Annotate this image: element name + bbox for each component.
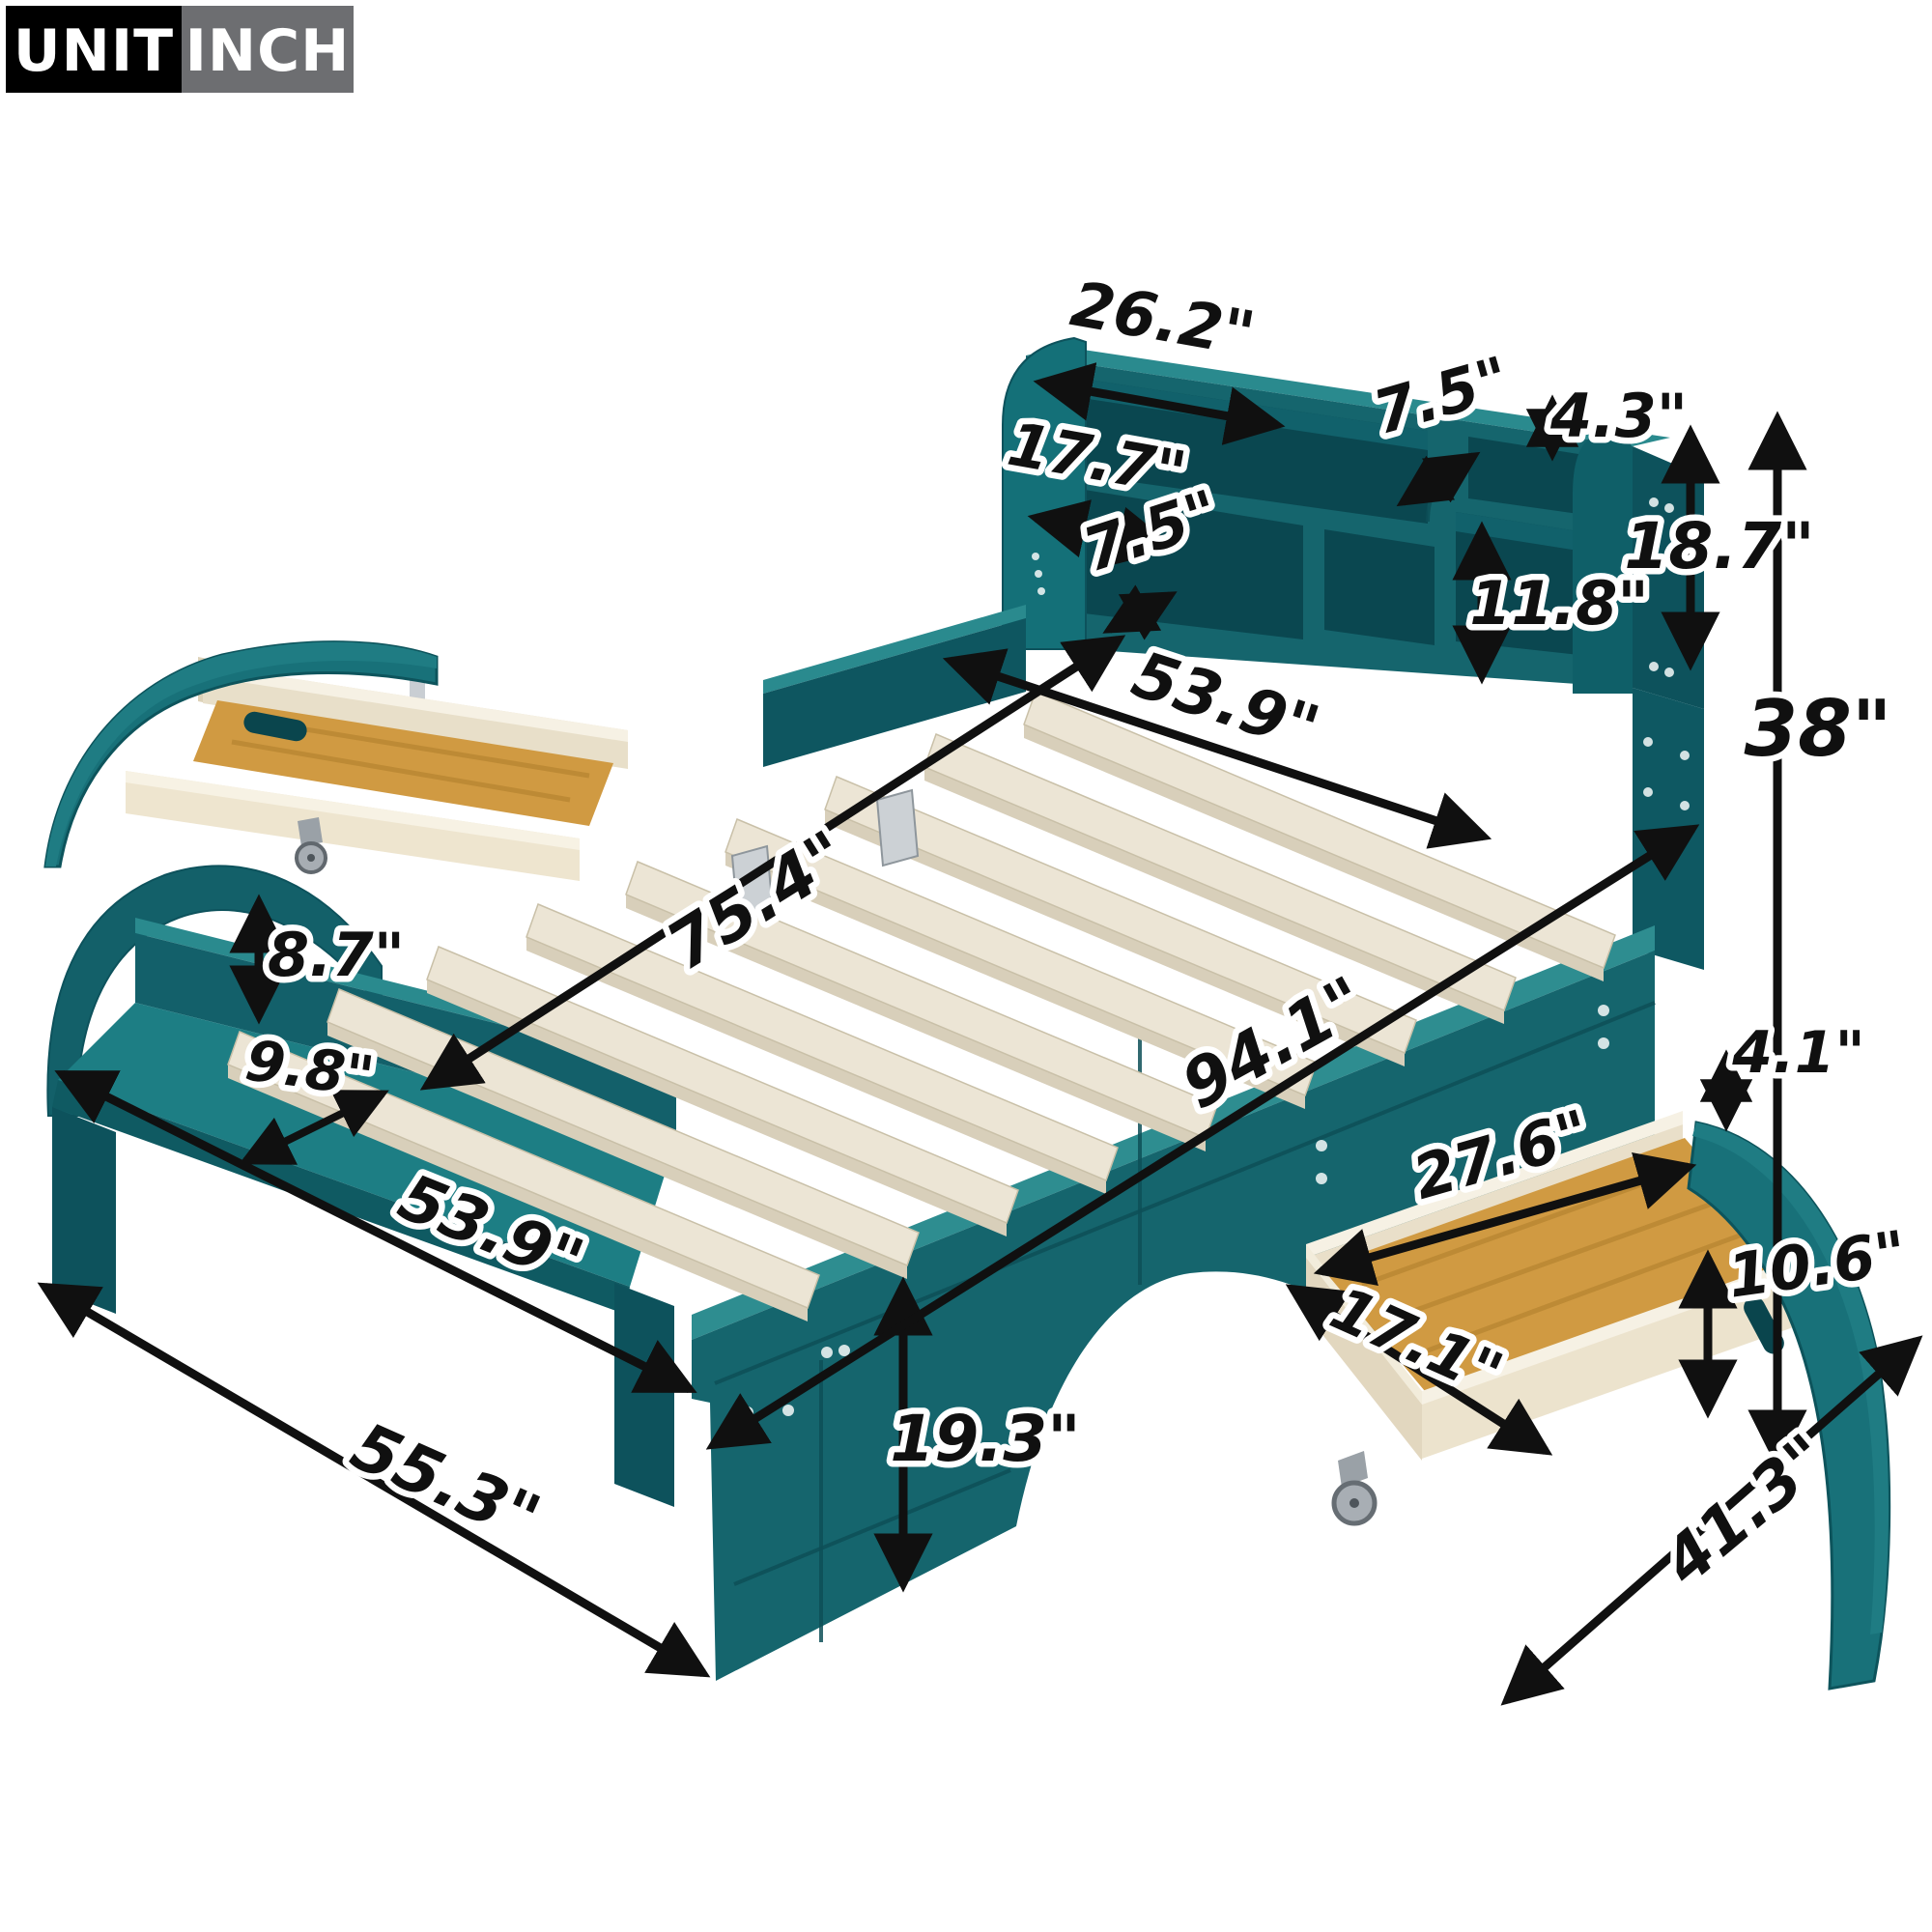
dim-label-11-8: 11.8" <box>1469 568 1648 639</box>
bed-diagram-svg: UNIT INCH <box>0 0 1932 1932</box>
dim-label-19-3: 19.3" <box>890 1402 1080 1476</box>
inch-label: INCH <box>185 17 351 85</box>
right-drawer-curved-panel <box>1689 1122 1889 1689</box>
bench-left-leg <box>52 1107 116 1314</box>
left-storage-drawer <box>45 642 628 881</box>
dim-label-4-1: 4.1" <box>1731 1019 1865 1087</box>
dim-label-38: 38" <box>1744 684 1891 774</box>
unit-label: UNIT <box>14 17 174 85</box>
dimension-diagram: UNIT INCH <box>0 0 1932 1932</box>
dim-label-4-3: 4.3" <box>1549 381 1688 451</box>
far-rail-face <box>763 618 1026 767</box>
headboard-side-panel-lower <box>1633 688 1704 970</box>
headboard-lower-middle-cubby <box>1324 529 1435 645</box>
slat-bracket <box>877 790 918 866</box>
dim-label-41-3: 41.3" <box>1648 1420 1842 1600</box>
dim-label-18-7: 18.7" <box>1624 509 1814 583</box>
bench-right-leg <box>614 1283 674 1507</box>
dim-label-8-7: 8.7" <box>268 920 405 990</box>
dim-label-55-3: 55.3" <box>340 1408 551 1558</box>
unit-badge: UNIT INCH <box>6 6 354 93</box>
far-side-rail <box>763 605 1026 767</box>
